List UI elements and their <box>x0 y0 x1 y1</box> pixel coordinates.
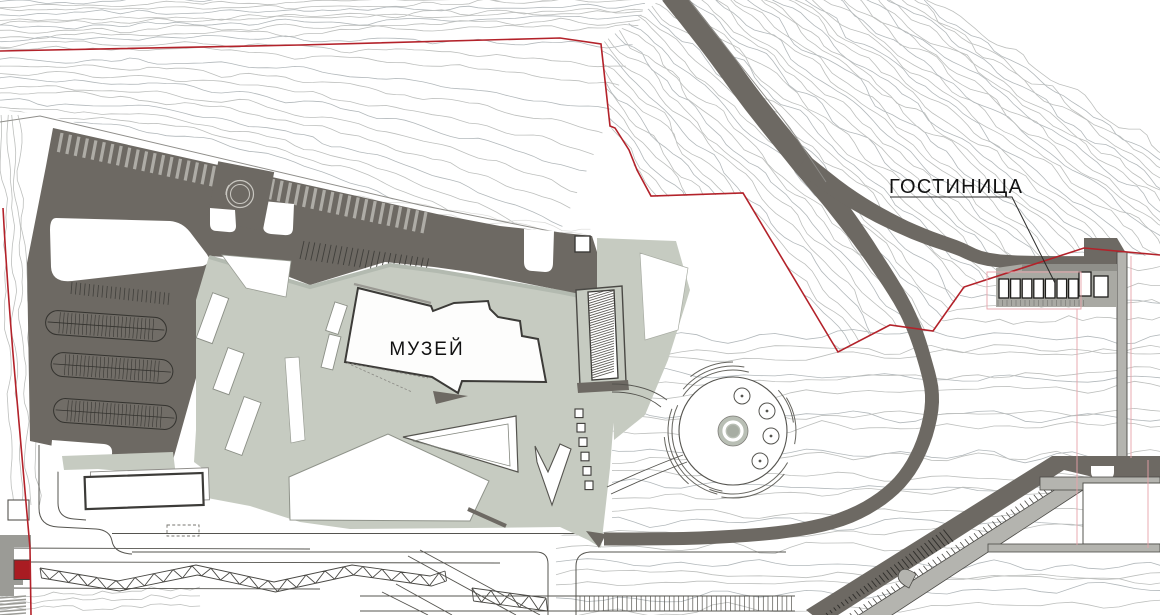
svg-text:МУЗЕЙ: МУЗЕЙ <box>389 338 464 360</box>
svg-text:ГОСТИНИЦА: ГОСТИНИЦА <box>889 176 1023 198</box>
